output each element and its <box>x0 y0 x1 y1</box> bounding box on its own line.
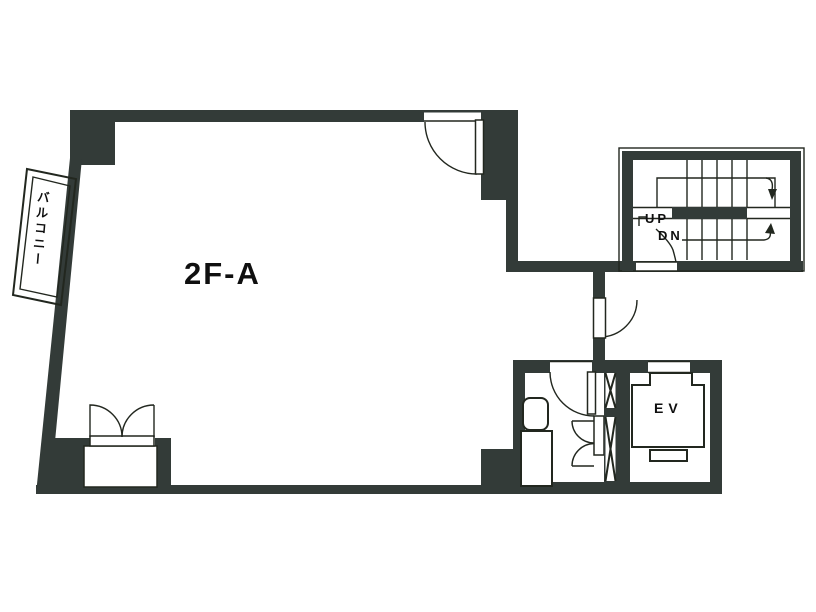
stairwell-right-wall <box>790 151 801 271</box>
elevator-label: EV <box>654 401 683 415</box>
floor-plan-canvas: 2F-A バルコニー UP DN EV <box>0 0 816 612</box>
entry-wall-lower <box>593 338 605 362</box>
service-block <box>513 360 722 494</box>
toilet-basin-fixture <box>523 398 548 430</box>
toilet-counter-fixture <box>521 431 552 486</box>
top-left-corner-block <box>70 110 115 165</box>
top-door-leaf <box>476 120 484 174</box>
entry-step <box>84 446 157 487</box>
stairwell <box>619 148 804 271</box>
right-wall-upper <box>506 122 518 272</box>
wall-panel <box>594 416 604 455</box>
elevator-counterweight <box>650 450 687 461</box>
folding-door-lower-leaf <box>572 444 594 467</box>
double-door-left-leaf <box>90 405 122 437</box>
toilet-door-opening <box>550 362 592 374</box>
folding-door-upper-leaf <box>572 421 594 443</box>
top-door-swing-arc <box>425 122 477 174</box>
elevator-left-wall <box>616 360 630 494</box>
top-door <box>424 113 484 175</box>
walk-line-down-arrow <box>765 223 775 234</box>
pipe-shaft <box>604 360 617 494</box>
floor-plan-drawing <box>0 0 816 612</box>
stair-flight-edge-upper <box>657 178 775 207</box>
walk-line-down <box>682 231 770 240</box>
stairwell-opening <box>636 262 677 271</box>
stairs-down-label: DN <box>658 229 683 242</box>
double-door <box>84 405 157 487</box>
elevator-door-opening <box>648 361 690 373</box>
unit-entry-door <box>594 298 638 338</box>
double-door-right-leaf <box>122 405 154 437</box>
unit-entry-door-leaf <box>594 298 606 338</box>
entry-wall-upper <box>593 261 605 298</box>
stair-treads-upper <box>687 160 747 207</box>
service-right-wall <box>710 360 722 494</box>
stairwell-top-wall <box>622 151 801 160</box>
stairwell-left-wall <box>622 151 633 271</box>
double-door-threshold <box>90 436 154 446</box>
stair-landing-band <box>672 207 747 219</box>
toilet-door-leaf <box>588 372 596 414</box>
room-label: 2F-A <box>184 258 261 289</box>
walk-line-up-hook <box>766 178 772 190</box>
corner-pillar <box>481 449 518 494</box>
stairs-up-label: UP <box>645 212 669 225</box>
